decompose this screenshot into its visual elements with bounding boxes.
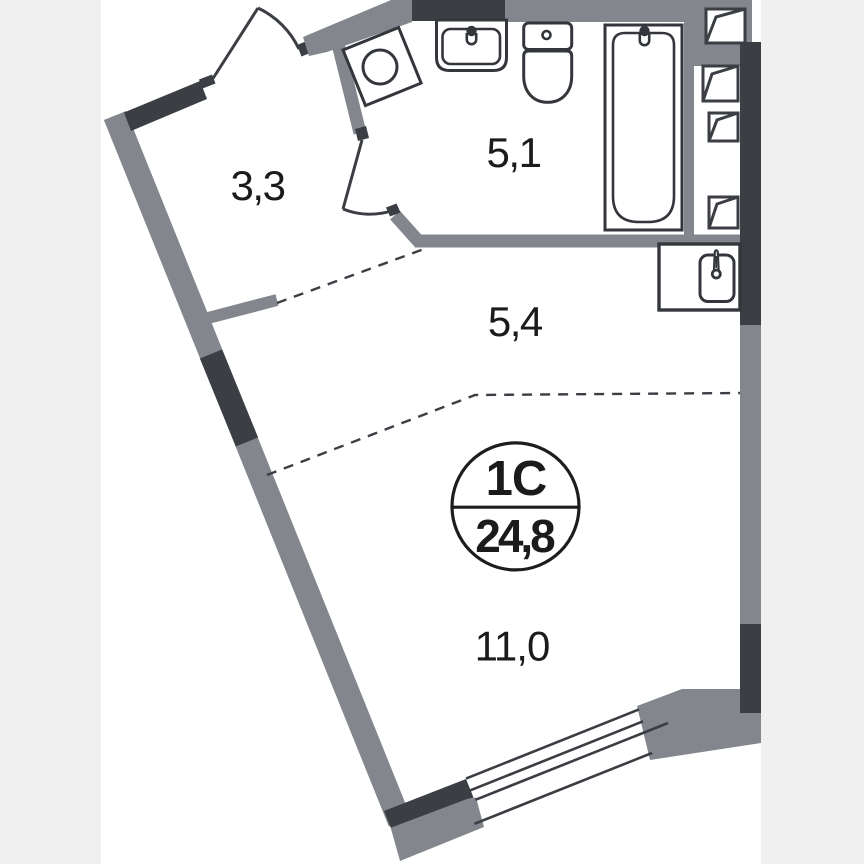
svg-text:5,1: 5,1 <box>487 129 541 176</box>
svg-text:24,8: 24,8 <box>475 510 555 562</box>
svg-text:11,0: 11,0 <box>475 623 550 670</box>
svg-text:5,4: 5,4 <box>488 298 543 345</box>
svg-text:1С: 1С <box>486 452 547 506</box>
svg-text:3,3: 3,3 <box>231 162 285 209</box>
